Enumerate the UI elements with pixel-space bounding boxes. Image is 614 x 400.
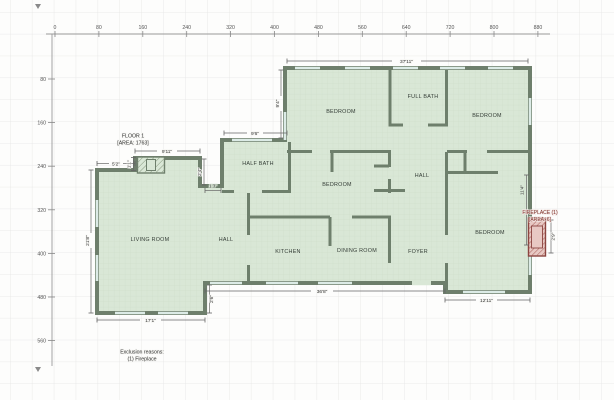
svg-text:640: 640: [402, 25, 411, 31]
svg-text:560: 560: [37, 339, 46, 345]
svg-text:80: 80: [40, 77, 46, 83]
svg-text:320: 320: [226, 25, 235, 31]
svg-text:480: 480: [37, 295, 46, 301]
room-label-half-bath: HALF BATH: [242, 161, 274, 167]
room-label-dining-room: DINING ROOM: [337, 248, 377, 254]
svg-text:9'6": 9'6": [251, 131, 259, 137]
svg-text:0: 0: [54, 25, 57, 31]
svg-text:160: 160: [37, 121, 46, 127]
room-label-foyer: FOYER: [408, 249, 428, 255]
svg-text:21'8": 21'8": [85, 235, 91, 246]
room-label-bedroom-bottom-right: BEDROOM: [475, 230, 505, 236]
room-label-bedroom-top-left: BEDROOM: [326, 109, 356, 115]
floor-plan-canvas[interactable]: 0 80 160 240 320 400 480 560 640 720 800…: [0, 0, 614, 400]
svg-text:400: 400: [270, 25, 279, 31]
floor-name: FLOOR 1: [122, 134, 144, 140]
room-label-full-bath: FULL BATH: [408, 94, 439, 100]
svg-text:9'11": 9'11": [162, 149, 173, 155]
room-label-bedroom-top-right: BEDROOM: [472, 113, 502, 119]
svg-text:800: 800: [490, 25, 499, 31]
svg-text:560: 560: [358, 25, 367, 31]
svg-text:240: 240: [37, 164, 46, 170]
svg-text:11'4": 11'4": [520, 185, 526, 196]
svg-text:1'3": 1'3": [209, 184, 217, 190]
svg-text:240: 240: [182, 25, 191, 31]
svg-text:12'11": 12'11": [480, 298, 493, 304]
living-room-chimney: [138, 157, 165, 173]
floor-area: [AREA: 1763]: [117, 141, 149, 147]
svg-text:36'8": 36'8": [317, 289, 328, 295]
svg-text:2'9": 2'9": [551, 232, 557, 240]
svg-text:5'2": 5'2": [112, 162, 120, 168]
svg-text:2'4": 2'4": [197, 168, 203, 176]
fireplace-firebox: [532, 226, 543, 248]
fireplace-title: FIREPLACE (1): [522, 210, 558, 216]
svg-text:80: 80: [96, 25, 102, 31]
svg-text:37'11": 37'11": [400, 59, 413, 65]
svg-text:480: 480: [314, 25, 323, 31]
room-label-bedroom-middle: BEDROOM: [322, 182, 352, 188]
room-label-living-room: LIVING ROOM: [131, 237, 170, 243]
svg-text:320: 320: [37, 208, 46, 214]
svg-text:1'1": 1'1": [127, 160, 133, 168]
room-label-hall-upper: HALL: [415, 173, 430, 179]
fireplace[interactable]: [529, 218, 546, 256]
fireplace-area: [AREA: 6]: [529, 217, 552, 223]
svg-text:160: 160: [138, 25, 147, 31]
exclusion-title: Exclusion reasons:: [120, 350, 164, 356]
svg-text:720: 720: [446, 25, 455, 31]
room-label-kitchen: KITCHEN: [275, 249, 300, 255]
exclusion-item: (1) Fireplace: [127, 357, 156, 363]
svg-text:9'4": 9'4": [275, 99, 281, 107]
svg-text:880: 880: [534, 25, 543, 31]
svg-text:400: 400: [37, 251, 46, 257]
svg-text:17'1": 17'1": [145, 318, 156, 324]
room-label-hall-lower: HALL: [219, 237, 234, 243]
floor-plan-app: 0 80 160 240 320 400 480 560 640 720 800…: [0, 0, 614, 400]
svg-text:2'6": 2'6": [209, 295, 215, 303]
